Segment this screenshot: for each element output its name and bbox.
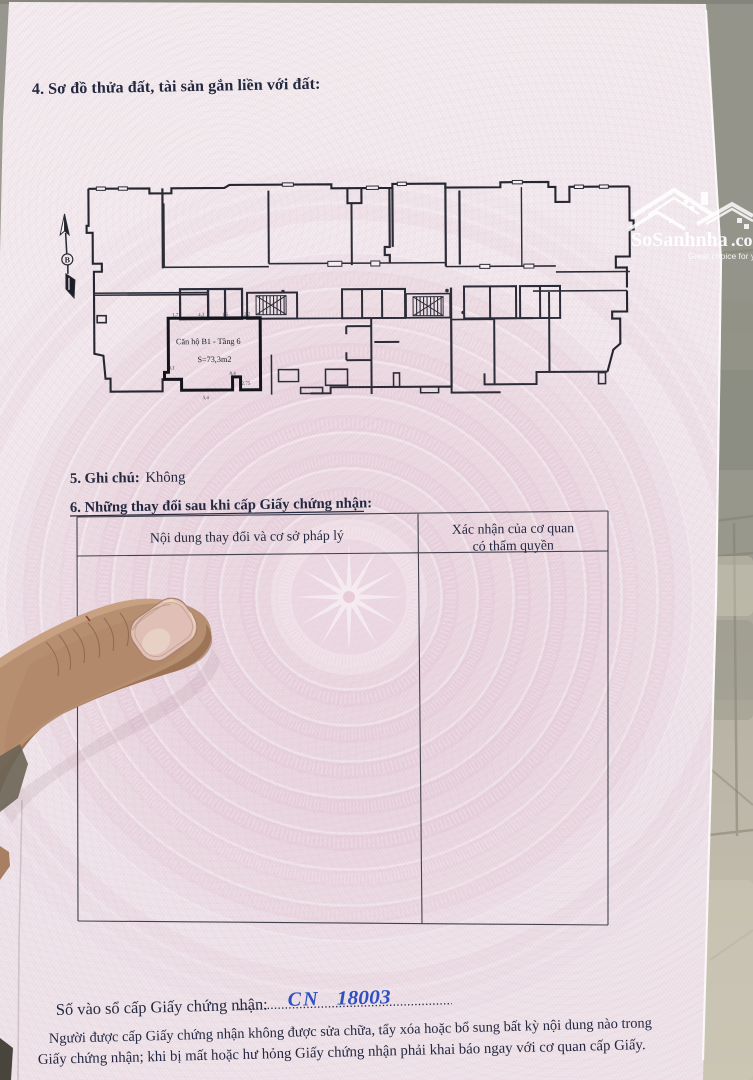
svg-text:1,5: 1,5 [222, 313, 229, 318]
svg-text:3,1: 3,1 [168, 366, 175, 371]
svg-text:SoSanhnha: SoSanhnha [631, 229, 728, 251]
svg-text:Số vào sổ cấp Giấy chứng nhận:: Số vào sổ cấp Giấy chứng nhận: [56, 994, 268, 1019]
svg-text:2,75: 2,75 [242, 382, 251, 387]
svg-text:8,4: 8,4 [229, 372, 236, 377]
svg-text:5. Ghi chú: Không: 5. Ghi chú: Không [70, 469, 186, 487]
svg-text:S=73,3m2: S=73,3m2 [197, 355, 231, 364]
svg-text:Great choice for yo: Great choice for yo [688, 251, 753, 261]
svg-text:1,7: 1,7 [172, 313, 179, 318]
svg-text:B: B [65, 255, 71, 264]
svg-text:18003: 18003 [336, 986, 391, 1009]
svg-text:2,2: 2,2 [244, 313, 251, 318]
svg-text:CN: CN [287, 988, 319, 1011]
svg-text:Nội dung thay đổi và cơ sở phá: Nội dung thay đổi và cơ sở pháp lý [150, 528, 344, 546]
svg-text:.com: .com [731, 230, 753, 250]
svg-text:4,3: 4,3 [198, 313, 205, 318]
svg-text:Xác nhận của cơ quan: Xác nhận của cơ quan [452, 520, 575, 537]
svg-text:5,4: 5,4 [203, 396, 210, 401]
svg-text:có thẩm quyền: có thẩm quyền [472, 537, 554, 553]
svg-text:Căn hộ B1 - Tầng 6: Căn hộ B1 - Tầng 6 [176, 337, 241, 346]
svg-text:4. Sơ đồ thửa đất, tài sản gắn: 4. Sơ đồ thửa đất, tài sản gắn liền với … [32, 76, 321, 98]
